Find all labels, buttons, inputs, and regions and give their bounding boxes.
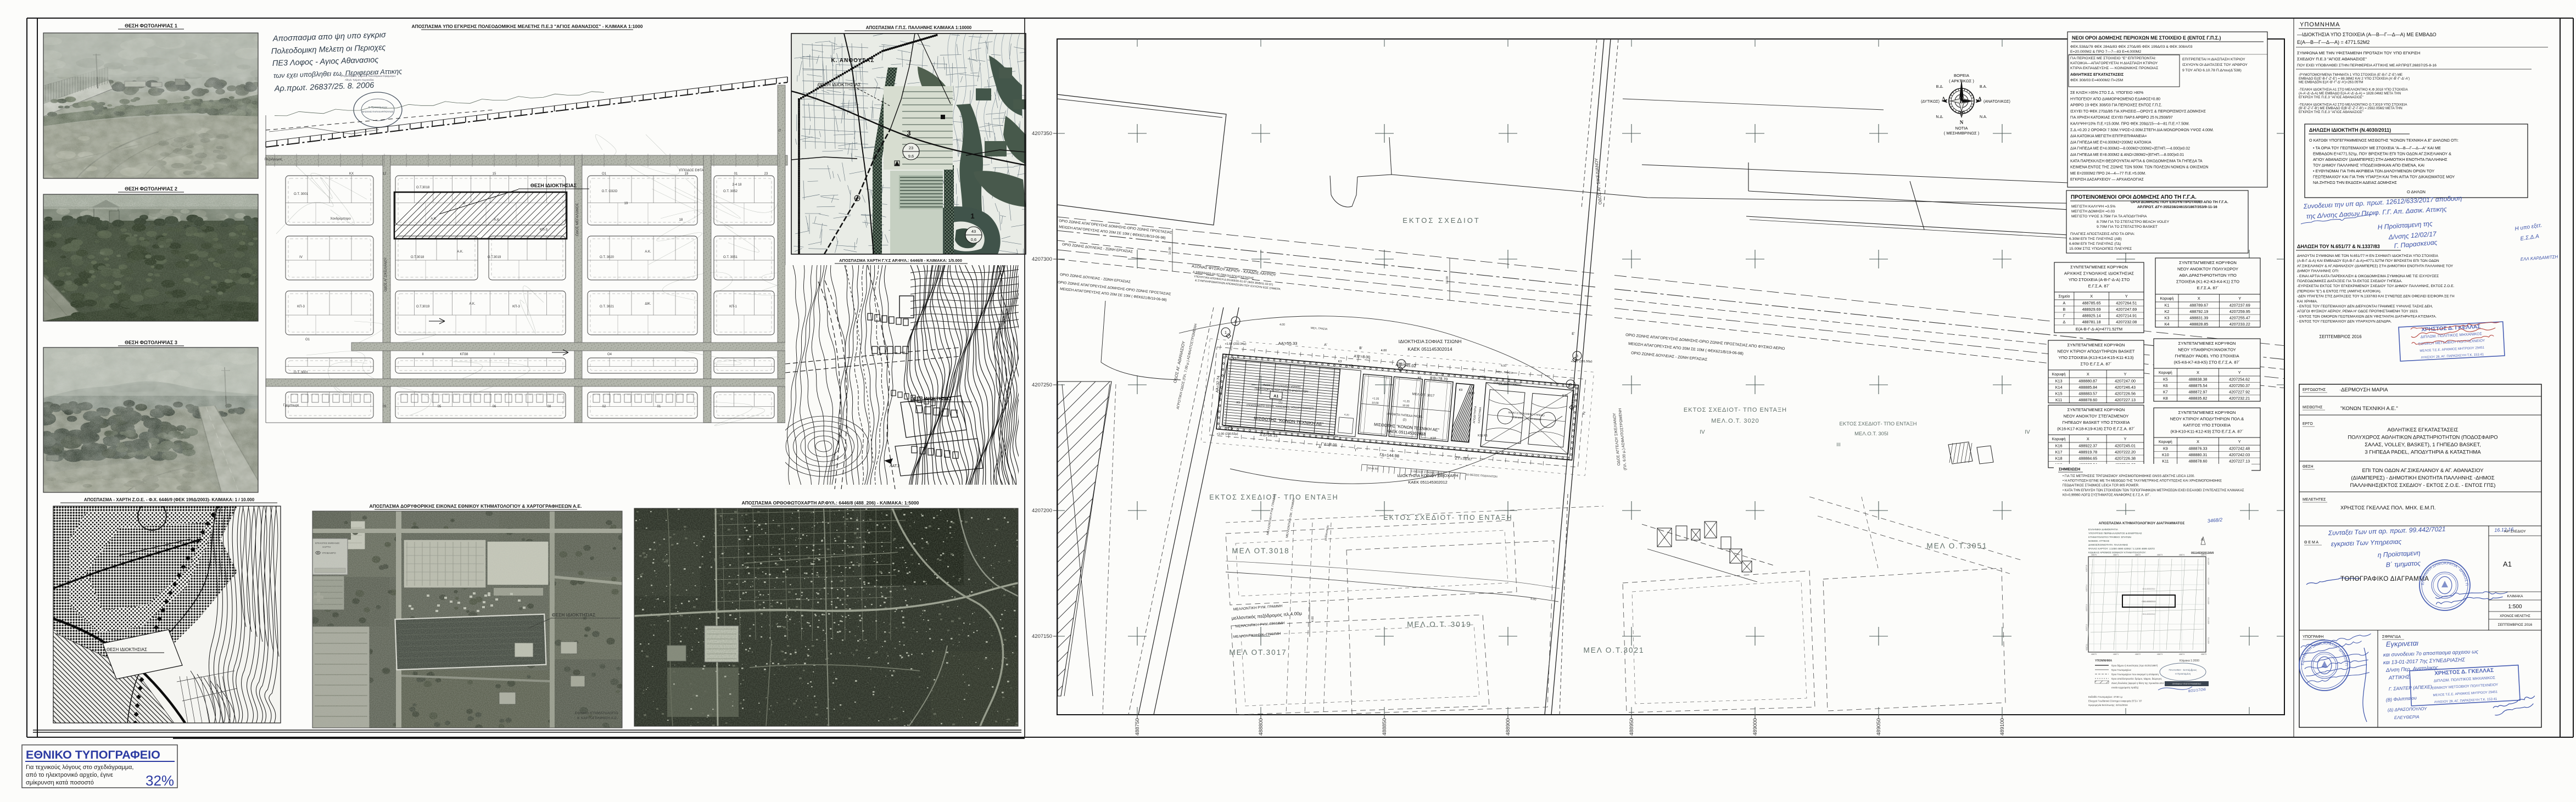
svg-text:ΣΥΝΤΕΤΑΓΜΕΝΕΣ ΚΟΡΥΦΩΝ: ΣΥΝΤΕΤΑΓΜΕΝΕΣ ΚΟΡΥΦΩΝ [2178, 341, 2236, 346]
svg-text:Όριο Γεωτεμαχίων που εκκρεμεί: Όριο Γεωτεμαχίων που εκκρεμεί η απόφαση [2111, 673, 2159, 676]
svg-text:ΜΕ Ε=2000Μ2 ΠΡΟ 24—4—77 Π.Ε.=5: ΜΕ Ε=2000Μ2 ΠΡΟ 24—4—77 Π.Ε.=5.00Μ. [2070, 172, 2146, 176]
svg-text:Δ/νση Περ. Ανατολικης: Δ/νση Περ. Ανατολικης [2385, 665, 2439, 674]
svg-text:4207237.69: 4207237.69 [2229, 303, 2250, 308]
svg-text:1: 1 [1225, 331, 1227, 335]
svg-text:+1.00 (230.52μ): +1.00 (230.52μ) [1216, 433, 1238, 436]
svg-text:488925.14: 488925.14 [2082, 313, 2101, 318]
svg-text:ΒΑΣΙΛΗΣ ΠΑΠΑΧΑΡ/ΠΟΥΛΟΣ: ΒΑΣΙΛΗΣ ΠΑΠΑΧΑΡ/ΠΟΥΛΟΣ [362, 110, 394, 113]
svg-text:ΦΕΚ.538Δ/78 ΦΕΚ 284Δ/83 ΦΕΚ 27: ΦΕΚ.538Δ/78 ΦΕΚ 284Δ/83 ΦΕΚ 270Δ/85 ΦΕΚ … [2070, 45, 2193, 49]
svg-text:Y: Y [2124, 436, 2127, 441]
svg-text:488884.65: 488884.65 [2078, 456, 2097, 461]
svg-text:Όριο απαλλοτριωτέα: δρόμοι, τά: Όριο απαλλοτριωτέα: δρόμοι, τάφροι, διώρ… [2111, 677, 2162, 680]
svg-text:Όριο Γεωτεμαχίων: Όριο Γεωτεμαχίων [2111, 669, 2132, 671]
svg-text:ΑΓ.ΣΙΚΕΛΙΑΝΟΥ & ΑΓ.ΑΘΑΝΑΣΙΟΥ (: ΑΓ.ΣΙΚΕΛΙΑΝΟΥ & ΑΓ.ΑΘΑΝΑΣΙΟΥ (ΔΙΑΜΠΕΡΕΣ)… [2297, 264, 2454, 268]
svg-text:ΑΠΟΣΠΑΣΜΑ ΚΤΗΜΑΤΟΛΟΓΙΚΟΥ ΔΙΑΓΡ: ΑΠΟΣΠΑΣΜΑ ΚΤΗΜΑΤΟΛΟΓΙΚΟΥ ΔΙΑΓΡΑΜΜΑΤΟΣ [2099, 521, 2185, 525]
svg-text:ΑΡΧΙΚΗΣ ΣΥΝΟΛΙΚΗΣ ΙΔΙΟΚΤΗΣΙΑΣ: ΑΡΧΙΚΗΣ ΣΥΝΟΛΙΚΗΣ ΙΔΙΟΚΤΗΣΙΑΣ [2064, 271, 2134, 276]
svg-text:Χονδρεμπορο: Χονδρεμπορο [330, 217, 351, 221]
svg-text:ΤΟΠΟΓΡΑΦΙΚΟ ΔΙΑΓΡΑΜΜΑ: ΤΟΠΟΓΡΑΦΙΚΟ ΔΙΑΓΡΑΜΜΑ [2340, 576, 2429, 582]
svg-text:ΠΟΛΥΧΩΡΟΣ ΑΘΛΗΤΙΚΩΝ ΔΡΑΣΤΗΡΙΟΤ: ΠΟΛΥΧΩΡΟΣ ΑΘΛΗΤΙΚΩΝ ΔΡΑΣΤΗΡΙΟΤΗΤΩΝ (ΠΟΔΟ… [2348, 435, 2497, 441]
svg-text:4207150: 4207150 [1032, 633, 1052, 640]
svg-text:8.70Μ ΓΙΑ ΤΟ ΣΤΕΓΑΣΤΡΟ BEACH V: 8.70Μ ΓΙΑ ΤΟ ΣΤΕΓΑΣΤΡΟ BEACH VOLEY [2097, 220, 2170, 224]
svg-text:48870: 48870 [2091, 554, 2097, 556]
svg-text:Πεζοδρομος: Πεζοδρομος [265, 158, 282, 161]
svg-text:Y: Y [2238, 439, 2241, 444]
svg-text:Κ2: Κ2 [1233, 357, 1237, 361]
svg-text:488885.84: 488885.84 [2078, 385, 2097, 390]
svg-text:Κορυφή: Κορυφή [2160, 297, 2174, 301]
svg-text:420714: 420714 [2086, 585, 2088, 592]
svg-text:ΔΗΛΩΣΗ ΤΟΥ Ν.651/77 & Ν.1337/8: ΔΗΛΩΣΗ ΤΟΥ Ν.651/77 & Ν.1337/83 [2297, 244, 2380, 249]
svg-text:ΨΗΦΙΑΚΑ ΥΠΟΓΕΓΡΑΜΜΕΝΟ: ΨΗΦΙΑΚΑ ΥΠΟΓΕΓΡΑΜΜΕΝΟ [2172, 683, 2201, 685]
svg-text:488835.82: 488835.82 [2189, 396, 2208, 401]
svg-text:Ο.Τ. 3001: Ο.Τ. 3001 [294, 193, 309, 196]
svg-text:ΛΑΤ.3: ΛΑΤ.3 [890, 464, 899, 468]
svg-text:ΘΕΣΗ: ΘΕΣΗ [2303, 465, 2314, 469]
svg-text:Κ4: Κ4 [1335, 435, 1338, 438]
svg-text:10.00: 10.00 [1446, 276, 1449, 284]
svg-text:• ΤΑ ΟΡΙΑ ΤΟΥ ΓΕΩΤΕΜΑΧΙΟΥ ΜΕ: • ΤΑ ΟΡΙΑ ΤΟΥ ΓΕΩΤΕΜΑΧΙΟΥ ΜΕ ΣΤΟΙΧΕΙΑ "Α… [2313, 145, 2441, 150]
svg-text:43: 43 [971, 229, 976, 234]
svg-text:ΣΕΠΤΕΜΒΡΙΟΣ 2016: ΣΕΠΤΕΜΒΡΙΟΣ 2016 [2498, 623, 2533, 627]
svg-text:4207264.51: 4207264.51 [2116, 301, 2137, 306]
svg-text:3468/2: 3468/2 [2207, 517, 2222, 524]
svg-text:4207250.37: 4207250.37 [2229, 383, 2250, 388]
svg-text:ΝΕΟΥ ΥΠΑΙΘΡΙΟΥ/ΑΝΟΙΚΤΟΥ: ΝΕΟΥ ΥΠΑΙΘΡΙΟΥ/ΑΝΟΙΚΤΟΥ [2178, 347, 2236, 352]
svg-text:ΣΥΝΤΕΤΑΓΜΕΝΕΣ ΚΟΡΥΦΩΝ: ΣΥΝΤΕΤΑΓΜΕΝΕΣ ΚΟΡΥΦΩΝ [2067, 407, 2125, 412]
svg-text:ΑΠΟΣΠΑΣΜΑ ΟΡΘΟΦΩΤΟΧΑΡΤΗ ΑΡ.ΦΥΛ: ΑΠΟΣΠΑΣΜΑ ΟΡΘΟΦΩΤΟΧΑΡΤΗ ΑΡ.ΦΥΛ.: 6446/8 … [742, 500, 919, 506]
svg-text:Ο.Τ. Ο32Ο: Ο.Τ. Ο32Ο [602, 190, 618, 193]
svg-text:3: 3 [1576, 355, 1578, 358]
svg-text:ΥΠΟΜΝΗΜΑ: ΥΠΟΜΝΗΜΑ [2095, 659, 2112, 663]
svg-text:ΟΡΙΟ ΖΩΝΗΣ ΔΟΥΛΕΙΑΣ - ΖΩΝΗ ΕΡΓ: ΟΡΙΟ ΖΩΝΗΣ ΔΟΥΛΕΙΑΣ - ΖΩΝΗ ΕΡΓΑΣΙΑΣ [1062, 243, 1133, 254]
svg-text:+1.82 (232.34μ): +1.82 (232.34μ) [1225, 343, 1246, 346]
svg-text:ΚΠ-3: ΚΠ-3 [512, 305, 520, 309]
svg-text:Κ1: Κ1 [2165, 303, 2170, 308]
svg-text:ΜΕΛ.Ο.Τ. 3019: ΜΕΛ.Ο.Τ. 3019 [1407, 620, 1472, 629]
svg-text:4207226.56: 4207226.56 [2115, 391, 2136, 396]
svg-text:488750: 488750 [1135, 718, 1141, 736]
svg-text:Β: Β [2063, 307, 2066, 312]
svg-text:Γρεμπιωρε: Γρεμπιωρε [283, 404, 299, 407]
svg-text:• ΓΙΑ ΤΙΣ ΜΕΤΡΗΣΕΙΣ ΤΡΙΓΩΝΙ: • ΓΙΑ ΤΙΣ ΜΕΤΡΗΣΕΙΣ ΤΡΙΓΩΝΙΣΜΟΥ ΧΡΗΣΙΜΟΠ… [2063, 475, 2195, 478]
svg-text:48874: 48874 [2179, 653, 2185, 655]
svg-text:ΣΕΠΤΕΜΒΡΙΟΣ 2016: ΣΕΠΤΕΜΒΡΙΟΣ 2016 [2319, 334, 2362, 339]
svg-text:ΝΟΤΙΑ: ΝΟΤΙΑ [1955, 126, 1968, 131]
svg-text:ΜΕΛΛΟΝΤΙΚΗ ΡΥΜ. ΓΡΑΜΜΗ: ΜΕΛΛΟΝΤΙΚΗ ΡΥΜ. ΓΡΑΜΜΗ [1233, 604, 1283, 612]
svg-text:ΜΙΣΘΩΤΗΣ "ΚΟΝΩΝ ΤΕΧΝΙΚΗ ΑΕ": ΜΙΣΘΩΤΗΣ "ΚΟΝΩΝ ΤΕΧΝΙΚΗ ΑΕ" [1254, 416, 1324, 427]
svg-text:Ν: Ν [1960, 120, 1964, 125]
svg-text:ΘΕΣΗ ΙΔΙΟΚΤΗΣΙΑΣ: ΘΕΣΗ ΙΔΙΟΚΤΗΣΙΑΣ [107, 647, 147, 652]
svg-text:ΥΠΟΓΡΑΦΗ: ΥΠΟΓΡΑΦΗ [2303, 635, 2323, 639]
svg-text:Αρ.πρωτ. 26837/25. 8. 2006: Αρ.πρωτ. 26837/25. 8. 2006 [274, 81, 375, 93]
svg-text:488872.97: 488872.97 [2189, 390, 2208, 395]
svg-text:ΕΛΛΗΝΙΚΗ ΔΗΜΟΚΡΑΤΙΑ: ΕΛΛΗΝΙΚΗ ΔΗΜΟΚΡΑΤΙΑ [2088, 528, 2119, 531]
svg-text:ΔΗΜΟΥ ΠΑΛΛΗΝΗΣ ΟΤΙ:: ΔΗΜΟΥ ΠΑΛΛΗΝΗΣ ΟΤΙ: [2297, 270, 2339, 273]
svg-text:15: 15 [493, 172, 496, 176]
svg-text:Ο.Τ.3019: Ο.Τ.3019 [488, 256, 501, 259]
svg-text:- ΕΝΤΟΣ ΤΟΥ ΓΕΩΤΕΜΑΧΙΟΥ ΔΕΝ ΥΠ: - ΕΝΤΟΣ ΤΟΥ ΓΕΩΤΕΜΑΧΙΟΥ ΔΕΝ ΥΠΑΡΧΟΥΝ ΔΕΝ… [2297, 320, 2392, 324]
svg-text:ΜΕΛ. ΓΡΑΣΙΑ: ΜΕΛ. ΓΡΑΣΙΑ [1496, 371, 1513, 375]
svg-text:Ο.Τ. 3051: Ο.Τ. 3051 [723, 256, 738, 259]
svg-text:Κ2: Κ2 [2165, 309, 2170, 314]
svg-text:4207259.95: 4207259.95 [2229, 309, 2250, 314]
svg-text:Κ12: Κ12 [1420, 433, 1425, 436]
svg-text:ΑΘΛΗΤΙΚΕΣ ΕΓΚΑΤΑΣΤΑΣΕΙΣ: ΑΘΛΗΤΙΚΕΣ ΕΓΚΑΤΑΣΤΑΣΕΙΣ [2070, 73, 2124, 77]
svg-text:Όριο δήμου ή Κοινότητας (προ 0: Όριο δήμου ή Κοινότητας (προ 01/01/1997) [2111, 664, 2158, 667]
svg-text:Κ11: Κ11 [2162, 459, 2169, 464]
svg-text:Ε=20.000Μ2 & ΠΡΟ 7—7—83 Ε=4.00: Ε=20.000Μ2 & ΠΡΟ 7—7—83 Ε=4.000Μ2 [2070, 50, 2141, 54]
svg-text:Κορυφή: Κορυφή [2052, 438, 2066, 441]
svg-text:2-4 18: 2-4 18 [732, 183, 742, 187]
svg-text:488880.87: 488880.87 [2078, 379, 2097, 384]
svg-text:4207250: 4207250 [1032, 382, 1052, 388]
svg-text:Η Προϊσταμενη της: Η Προϊσταμενη της [2377, 220, 2433, 231]
svg-text:50+4.50: 50+4.50 [1368, 467, 1378, 470]
svg-text:ΙΙΙ: ΙΙΙ [1836, 442, 1841, 447]
svg-text:Α'Β'=8.00: Α'Β'=8.00 [1354, 355, 1370, 360]
svg-text:420715: 420715 [2208, 558, 2210, 565]
svg-text:420713: 420713 [2208, 597, 2210, 604]
svg-text:ΥΠΟΜΝΗΜΑ: ΥΠΟΜΝΗΜΑ [2300, 21, 2340, 28]
svg-text:ΠΑΛΛΗΝΗΣ(ΕΚΤΟΣ ΣΧΕΔΙΟΥ - ΕΚΤΟΣ: ΠΑΛΛΗΝΗΣ(ΕΚΤΟΣ ΣΧΕΔΙΟΥ - ΕΚΤΟΣ Ζ.Ο.Ε. - … [2350, 483, 2496, 489]
svg-text:Κ15: Κ15 [2055, 391, 2063, 396]
svg-text:μελλοντικός: μελλοντικός [1323, 525, 1330, 541]
svg-text:Β'Β=78.70: Β'Β=78.70 [1430, 377, 1448, 382]
svg-text:Σημείο: Σημείο [2059, 294, 2070, 299]
svg-text:Ο.Τ. 3052: Ο.Τ. 3052 [723, 190, 738, 193]
svg-text:Αθηνά, Τμήματο Χωροταξίας: Αθηνά, Τμήματο Χωροταξίας [345, 78, 374, 81]
svg-text:ΚΠ38: ΚΠ38 [460, 353, 468, 356]
svg-text:Κ5: Κ5 [1349, 364, 1353, 368]
svg-text:051145302014: 051145302014 [2142, 588, 2155, 590]
svg-text:Κ19: Κ19 [1480, 375, 1485, 379]
svg-text:ΜΕΛΟΣ Τ.Ε.Ε. ΑΡΙΘΜΟΣ ΜΗΤΡΩΟΥ 2: ΜΕΛΟΣ Τ.Ε.Ε. ΑΡΙΘΜΟΣ ΜΗΤΡΩΟΥ 29451 [2419, 346, 2485, 353]
svg-text:48870: 48870 [2091, 653, 2097, 655]
svg-text:ΣΧΕΔΙΟΥ Π.Ε.3 "ΑΓΙΟΣ ΑΘΑΝΑΣΙΟΣ: ΣΧΕΔΙΟΥ Π.Ε.3 "ΑΓΙΟΣ ΑΘΑΝΑΣΙΟΣ" [2297, 57, 2367, 61]
svg-text:4207242.48: 4207242.48 [2229, 446, 2250, 451]
svg-text:ΑΓΙΟΥ ΑΘΑΝΑΣΙΟΥ (ΔΙΑΜΠΕΡΕΣ) ΣΤ: ΑΓΙΟΥ ΑΘΑΝΑΣΙΟΥ (ΔΙΑΜΠΕΡΕΣ) ΣΤΗ ΔΗΜΟΤΙΚΗ… [2313, 157, 2448, 162]
svg-text:Σ.Δ.=0.20 2 ΟΡΟΦΟΙ 7.50Μ.ΥΨΟΣ+: Σ.Δ.=0.20 2 ΟΡΟΦΟΙ 7.50Μ.ΥΨΟΣ+2.00Μ.ΣΤΕΓ… [2070, 128, 2214, 132]
svg-text:ΠΡΟΤΕΙΝΟΜΕΝΟΙ ΟΡΟΙ ΔΟΜΗΣΗΣ ΑΠ: ΠΡΟΤΕΙΝΟΜΕΝΟΙ ΟΡΟΙ ΔΟΜΗΣΗΣ ΑΠΟ ΤΗ Γ.Γ.Α. [2071, 194, 2197, 200]
svg-text:Κ5: Κ5 [2163, 377, 2168, 382]
svg-text:( ΑΡΚΤΙΚΩΣ ): ( ΑΡΚΤΙΚΩΣ ) [1949, 78, 1974, 83]
svg-text:ΚΕΙΜΕΝΑ ΕΝΤΟΣ ΤΗΣ ΖΩΝΗΣ ΤΩΝ 50: ΚΕΙΜΕΝΑ ΕΝΤΟΣ ΤΗΣ ΖΩΝΗΣ ΤΩΝ 500Μ. ΤΩΝ ΠΟ… [2070, 166, 2209, 170]
svg-text:Κ9: Κ9 [2163, 446, 2168, 451]
svg-text:ΒΓ=33.09: ΒΓ=33.09 [1571, 394, 1577, 411]
svg-text:48872: 48872 [2135, 653, 2141, 655]
svg-text:488876.33: 488876.33 [2189, 446, 2208, 451]
svg-text:051145302012: 051145302012 [2142, 613, 2155, 615]
svg-text:Κ11: Κ11 [2055, 397, 2062, 402]
svg-text:ΚΑΤΑΣΤΗΜΑ: ΚΑΤΑΣΤΗΜΑ [1478, 407, 1483, 424]
svg-text:489050: 489050 [1876, 718, 1882, 736]
svg-text:Ε(Α-Β-Γ-Δ-Α)=4771.52ΤΜ: Ε(Α-Β-Γ-Δ-Α)=4771.52ΤΜ [2076, 327, 2122, 332]
svg-text:Κ3: Κ3 [1338, 360, 1342, 363]
svg-text:Κ3: Κ3 [2165, 316, 2170, 321]
svg-text:23: 23 [764, 172, 768, 176]
svg-text:ΑΘΛ.ΔΡΑΣΤΗΡΙΟΤΗΤΩΝ ΥΠΟ: ΑΘΛ.ΔΡΑΣΤΗΡΙΟΤΗΤΩΝ ΥΠΟ [2179, 273, 2237, 278]
svg-text:ΟΔΟΣ ΑΓ. ΣΙΚΕΛΙΑΝΟΥ: ΟΔΟΣ ΑΓ. ΣΙΚΕΛΙΑΝΟΥ [1594, 158, 1602, 205]
svg-text:Κ10: Κ10 [1469, 392, 1474, 395]
svg-text:ΘΕΣΗ ΦΩΤΟΛΗΨΙΑΣ 1: ΘΕΣΗ ΦΩΤΟΛΗΨΙΑΣ 1 [125, 23, 177, 29]
svg-text:μελλοντικός πεζόδρομος πλ.4.00: μελλοντικός πεζόδρομος πλ.4.00μ [1231, 610, 1302, 621]
svg-text:Κορυφή: Κορυφή [2159, 440, 2172, 444]
svg-text:4207227.13: 4207227.13 [2115, 397, 2136, 402]
svg-text:ΕΓΚΡΙΣΗ ΔΑΣΑΡΧΕΙΟΥ — ΑΡΧΑΙΟΛΟΓ: ΕΓΚΡΙΣΗ ΔΑΣΑΡΧΕΙΟΥ — ΑΡΧΑΙΟΛΟΓΙΑΣ [2070, 178, 2144, 182]
svg-text:X: X [2087, 372, 2089, 377]
svg-text:Δ: Δ [1942, 96, 1945, 102]
svg-text:ΚΧ: ΚΧ [349, 172, 354, 176]
svg-text:ΙΣΧΥΕΙ ΤΟ ΦΕΚ 270Δ/85 ΓΙΑ ΧΡΗΣ: ΙΣΧΥΕΙ ΤΟ ΦΕΚ 270Δ/85 ΓΙΑ ΧΡΗΣΕΙΣ—ΟΡΟΥΣ … [2070, 110, 2206, 114]
svg-text:ΜΕΛΛΟΝΤΙΚΗ ΟΙΚ. ΓΡΑΜΜΗ: ΜΕΛΛΟΝΤΙΚΗ ΟΙΚ. ΓΡΑΜΜΗ [1233, 632, 1281, 639]
svg-text:ΕΘΝΙΚΟΥ ΜΕΤΣΟΒΙΟΥ ΠΟΛΥΤΕΧΝΕΙΟΥ: ΕΘΝΙΚΟΥ ΜΕΤΣΟΒΙΟΥ ΠΟΛΥΤΕΧΝΕΙΟΥ [2432, 683, 2499, 690]
svg-text:Α: Α [1978, 96, 1982, 102]
svg-text:ΠΑΛΛΗΝΗ - Σεπτέμβριος: ΠΑΛΛΗΝΗ - Σεπτέμβριος [2169, 668, 2197, 671]
svg-text:(ΠΕΡΙΟΧΗ "Ε") & ΕΝΤΟΣ ΓΠΣ (ΑΜΙ: (ΠΕΡΙΟΧΗ "Ε") & ΕΝΤΟΣ ΓΠΣ (ΑΜΙΓΗΣ ΚΑΤΟΙΚ… [2297, 289, 2382, 293]
svg-text:488919.78: 488919.78 [2078, 450, 2097, 455]
svg-text:ΓΙΑ ΧΡΗΣΗ ΚΑΤΟΙΚΙΑΣ ΙΣΧΥΕΙ ΠΑΡ: ΓΙΑ ΧΡΗΣΗ ΚΑΤΟΙΚΙΑΣ ΙΣΧΥΕΙ ΠΑΡ.6 ΑΡΘΡΟ 2… [2070, 116, 2173, 120]
svg-text:ΑΠΟΣΠΑΣΜΑ ΧΑΡΤΗ Γ.Υ.Σ ΑΡ.ΦΥΛ.:: ΑΠΟΣΠΑΣΜΑ ΧΑΡΤΗ Γ.Υ.Σ ΑΡ.ΦΥΛ.: 6446/8 - … [839, 258, 962, 263]
svg-text:ΜΕΓΙΣΤΗ ΚΑΛΥΨΗ =3.5%: ΜΕΓΙΣΤΗ ΚΑΛΥΨΗ =3.5% [2071, 205, 2116, 209]
svg-text:23: 23 [909, 145, 913, 150]
svg-text:4.00: 4.00 [1279, 323, 1285, 327]
svg-text:Ημερομηνία Εκτύπωσης: 22/11/20: Ημερομηνία Εκτύπωσης: 22/11/2016 [2088, 704, 2128, 706]
svg-text:ΣΥΜΦΩΝΑ ΜΕ ΤΗΝ ΥΦΙΣΤΑΜΕΝΗ ΠΡΟΤ: ΣΥΜΦΩΝΑ ΜΕ ΤΗΝ ΥΦΙΣΤΑΜΕΝΗ ΠΡΟΤΑΣΗ ΤΟΥ ΥΠ… [2297, 51, 2420, 55]
svg-text:488922.37: 488922.37 [2078, 444, 2097, 448]
svg-text:Η Προϊσταμένη: Η Προϊσταμένη [2175, 672, 2191, 675]
svg-text:ΓΙΑ ΠΕΡΙΟΧΕΣ ΜΕ ΣΤΟΙΧΕΙΟ "Ε" Ε: ΓΙΑ ΠΕΡΙΟΧΕΣ ΜΕ ΣΤΟΙΧΕΙΟ "Ε" ΕΠΙΤΡΕΠΟΝΤΑ… [2070, 57, 2156, 60]
svg-text:(ΔΙΑΜΠΕΡΕΣ) - ΔΗΜΟΤΙΚΗ ΕΝΟΤΗΤΑ: (ΔΙΑΜΠΕΡΕΣ) - ΔΗΜΟΤΙΚΗ ΕΝΟΤΗΤΑ ΠΑΛΛΗΝΗΣ … [2351, 475, 2494, 481]
svg-text:ΕΠΙ ΤΩΝ ΟΔΩΝ ΑΓ.ΣΙΚΕΛΙΑΝΟΥ & Α: ΕΠΙ ΤΩΝ ΟΔΩΝ ΑΓ.ΣΙΚΕΛΙΑΝΟΥ & ΑΓ. ΑΘΑΝΑΣΙ… [2362, 468, 2484, 474]
svg-text:ΕΓΚΡΙΣΗ ΤΗΣ Π.Ε.3 "ΑΓΙΟΣ ΑΘΑΝΑ: ΕΓΚΡΙΣΗ ΤΗΣ Π.Ε.3 "ΑΓΙΟΣ ΑΘΑΝΑΣΙΟΣ" [2299, 110, 2363, 114]
svg-text:Ο.Τ. 3001: Ο.Τ. 3001 [294, 371, 309, 374]
svg-text:Ο ΚΑΤΩΘΙ ΥΠΟΓΕΓΡΑΜΜΕΝΟΣ ΜΙΣΘΩΤ: Ο ΚΑΤΩΘΙ ΥΠΟΓΕΓΡΑΜΜΕΝΟΣ ΜΙΣΘΩΤΗΣ "ΚΟΝΩΝ … [2309, 138, 2458, 143]
svg-text:εγκρισει Των Υπηρεσιας: εγκρισει Των Υπηρεσιας [2331, 538, 2402, 548]
svg-text:Γ'Δ'=8.00: Γ'Δ'=8.00 [1321, 442, 1337, 447]
svg-text:Ν.Α.: Ν.Α. [1980, 115, 1987, 119]
svg-text:Κ13: Κ13 [2055, 379, 2063, 384]
svg-text:32%: 32% [146, 772, 174, 789]
svg-text:19: 19 [624, 202, 628, 205]
svg-text:ΘΕΣΗ ΦΩΤΟΛΗΨΙΑΣ 2: ΘΕΣΗ ΦΩΤΟΛΗΨΙΑΣ 2 [125, 186, 177, 192]
svg-text:48871: 48871 [2113, 653, 2119, 655]
svg-text:(Β) Φιλιππαιου: (Β) Φιλιππαιου [2385, 695, 2417, 703]
svg-text:Εγκρινεται: Εγκρινεται [2386, 639, 2419, 648]
svg-text:Η υπο εξετ.: Η υπο εξετ. [2514, 222, 2543, 232]
svg-text:06: 06 [493, 405, 496, 408]
svg-text:01: 01 [657, 405, 661, 408]
svg-text:ΘΕΣΗ ΦΩΤΟΛΗΨΙΑΣ 3: ΘΕΣΗ ΦΩΤΟΛΗΨΙΑΣ 3 [125, 340, 177, 345]
svg-text:Αποσπασμα απο ψη υπο εγκρι: Αποσπασμα απο ψη υπο εγκρισ [272, 31, 387, 43]
svg-text:Ο Προϊστάμενος τμήματος Πολεοδ: Ο Προϊστάμενος τμήματος Πολεοδομικών Εφα… [340, 75, 396, 77]
svg-text:Κ8: Κ8 [2163, 396, 2168, 401]
svg-text:ΠΟΛΕΟΔΟΜΙΚΕΣ ΔΙΑΤΑΞΕΙΣ ΓΙΑ ΤΑ: ΠΟΛΕΟΔΟΜΙΚΕΣ ΔΙΑΤΑΞΕΙΣ ΓΙΑ ΤΑ ΕΚΤΟΣ ΣΧΕΔ… [2297, 279, 2402, 283]
svg-text:ΠΛΑΓΙΕΣ ΑΠΟΣΤΑΣΕΙΣ ΑΠΟ ΤΑ ΟΡΙΑ: ΠΛΑΓΙΕΣ ΑΠΟΣΤΑΣΕΙΣ ΑΠΟ ΤΑ ΟΡΙΑ: [2070, 232, 2135, 236]
svg-text:Κορυφή: Κορυφή [2052, 373, 2066, 377]
svg-text:Ο.Τ. 3020: Ο.Τ. 3020 [600, 256, 614, 259]
svg-text:ΓΔ=144.98: ΓΔ=144.98 [1379, 452, 1399, 458]
svg-text:488900: 488900 [1505, 718, 1511, 736]
svg-text:Ο ΔΗΛΩΝ: Ο ΔΗΛΩΝ [2407, 189, 2426, 194]
svg-text:ΜΕΛΛΟΝΤΙΚΗ ΟΙΚ. ΓΡΑΜΜΗ: ΜΕΛΛΟΝΤΙΚΗ ΟΙΚ. ΓΡΑΜΜΗ [1286, 498, 1296, 538]
svg-text:ΚΑΛΥΨΗ=10% Π.Ε.=15.00Μ. ΠΡΟ ΦΕ: ΚΑΛΥΨΗ=10% Π.Ε.=15.00Μ. ΠΡΟ ΦΕΚ 209Δ/15—… [2070, 122, 2189, 126]
svg-text:3: 3 [907, 129, 910, 137]
svg-text:ΑΠΟΣΠΑΣΜΑ - ΧΑΡΤΗ Ζ.Ο.Ε. - Φ.Χ: ΑΠΟΣΠΑΣΜΑ - ΧΑΡΤΗ Ζ.Ο.Ε. - Φ.Χ. 6446/9 (… [84, 497, 255, 502]
svg-text:05: 05 [438, 405, 442, 408]
svg-text:Ο.Τ.3019: Ο.Τ.3019 [416, 305, 430, 309]
svg-text:ΜΕΓΙΣΤΗ ΔΟΜΗΣΗ =0.03: ΜΕΓΙΣΤΗ ΔΟΜΗΣΗ =0.03 [2071, 210, 2115, 214]
svg-text:η Προϊσταμενη: η Προϊσταμενη [2377, 549, 2421, 559]
svg-text:(τοιχος αντιστηριξης): (τοιχος αντιστηριξης) [1494, 381, 1522, 386]
svg-text:ΣΥΝΤΕΤΑΓΜΕΝΕΣ ΚΟΡΥΦΩΝ: ΣΥΝΤΕΤΑΓΜΕΝΕΣ ΚΟΡΥΦΩΝ [2178, 410, 2236, 415]
svg-text:ΕΚΤΟΣ ΣΧΕΔΙΟΤ- ΤΠΟ ΕΝΤΑΞΗ: ΕΚΤΟΣ ΣΧΕΔΙΟΤ- ΤΠΟ ΕΝΤΑΞΗ [1840, 421, 1917, 427]
svg-text:Ο4: Ο4 [607, 353, 612, 356]
svg-text:ΟΡΟΙ ΔΟΜΗΣΗΣ ΠΟΥ ΕΧΟΥΝ ΠΡΟΤΑΘΕ: ΟΡΟΙ ΔΟΜΗΣΗΣ ΠΟΥ ΕΧΟΥΝ ΠΡΟΤΑΘΕΙ ΑΠΟ ΤΗ Γ… [2131, 200, 2228, 204]
svg-text:Κ7: Κ7 [2163, 390, 2168, 395]
svg-text:ΕΚΤΟΣ ΣΧΕΔΙΟΤ- ΤΠΟ ΕΝΤΑΞΗ: ΕΚΤΟΣ ΣΧΕΔΙΟΤ- ΤΠΟ ΕΝΤΑΞΗ [1209, 493, 1338, 501]
svg-text:488878.60: 488878.60 [2189, 459, 2208, 464]
svg-text:-ΕΥΡΙΣΚΕΤΑΙ ΕΚΤΟΣ ΤΟΥ ΕΓΚΕΚΡΙΜ: -ΕΥΡΙΣΚΕΤΑΙ ΕΚΤΟΣ ΤΟΥ ΕΓΚΕΚΡΙΜΕΝΟΥ ΣΧΕΔΙ… [2297, 284, 2455, 288]
svg-text:ΔΗΛΟΥΤΑΙ ΣΥΜΦΩΝΑ ΜΕ ΤΟΝ Ν.651/: ΔΗΛΟΥΤΑΙ ΣΥΜΦΩΝΑ ΜΕ ΤΟΝ Ν.651/77 Η ΕΝ ΣΧ… [2297, 254, 2439, 258]
svg-text:Β: Β [1960, 99, 1964, 105]
svg-text:10.00: 10.00 [1169, 247, 1172, 255]
svg-text:-ΔΕΝ ΥΠΑΓΕΤΑΙ ΣΤΙΣ ΔΙΑΤΑΞΕΙΣ Τ: -ΔΕΝ ΥΠΑΓΕΤΑΙ ΣΤΙΣ ΔΙΑΤΑΞΕΙΣ ΤΟΥ Ν.1337/… [2297, 295, 2455, 299]
svg-text:Συνταξει Των υπ αρ. πρωτ. 99.: Συνταξει Των υπ αρ. πρωτ. 99.442/7021 [2328, 525, 2446, 537]
svg-text:Α.Κ.: Α.Κ. [431, 217, 437, 221]
svg-text:15.00Μ ΣΤΙΣ ΥΠΟΛΟΙΠΕΣ ΠΛΕΥΡΕΣ: 15.00Μ ΣΤΙΣ ΥΠΟΛΟΙΠΕΣ ΠΛΕΥΡΕΣ [2069, 247, 2132, 251]
svg-text:ΑΘΛΗΤΙΚΕΣ ΕΓΚΑΤΑΣΤΑΣΕΙΣ: ΑΘΛΗΤΙΚΕΣ ΕΓΚΑΤΑΣΤΑΣΕΙΣ [2387, 427, 2458, 433]
svg-text:ΚΤΙΡΙΑ ΕΚΠΑΙΔΕΥΣΗΣ — ΚΟΙΝΩΝΙΚΗ: ΚΤΙΡΙΑ ΕΚΠΑΙΔΕΥΣΗΣ — ΚΟΙΝΩΝΙΚΗΣ ΠΡΟΝΟΙΑΣ [2070, 66, 2158, 70]
svg-text:Β.Δ.: Β.Δ. [1936, 85, 1943, 89]
svg-text:ΚΑΕΚ 051145302014: ΚΑΕΚ 051145302014 [1407, 346, 1452, 352]
svg-text:ΝΑ ΖΗΤΗΣΩ ΤΗΝ ΕΚΔΟΣΗ ΑΔΕΙΑΣ ΔΟ: ΝΑ ΖΗΤΗΣΩ ΤΗΝ ΕΚΔΟΣΗ ΑΔΕΙΑΣ ΔΟΜΗΣΗΣ [2313, 180, 2398, 185]
svg-text:ΚΠ-3: ΚΠ-3 [297, 305, 305, 309]
svg-text:—ΙΔΙΟΚΤΗΣΙΑ ΥΠΟ ΣΤΟΙΧΕΙΑ (Α: —ΙΔΙΟΚΤΗΣΙΑ ΥΠΟ ΣΤΟΙΧΕΙΑ (Α—Β—Γ—Δ—Α) ΜΕ … [2297, 32, 2437, 37]
svg-text:ΕΜΒΑΔΟΝ Ε=4771.52τμ, ΠΟΥ ΒΡΙΣΚ: ΕΜΒΑΔΟΝ Ε=4771.52τμ, ΠΟΥ ΒΡΙΣΚΕΤΑΙ ΕΠΙ Τ… [2313, 152, 2451, 156]
svg-text:ΔΙΑ ΓΗΠΕΔΑ ΜΕ Ε=4.000Μ2—8.000Μ: ΔΙΑ ΓΗΠΕΔΑ ΜΕ Ε=4.000Μ2—8.000Μ2=200Μ2+(Ε… [2070, 147, 2190, 151]
svg-text:Κ14: Κ14 [2055, 385, 2063, 390]
svg-text:ΜΕΛ ΟΤ.3018: ΜΕΛ ΟΤ.3018 [1232, 547, 1289, 555]
svg-text:ΜΕΛΟΣ Τ.Ε.Ε. ΑΡΙΘΜΟΣ ΜΗΤΡΩΟΥ 2: ΜΕΛΟΣ Τ.Ε.Ε. ΑΡΙΘΜΟΣ ΜΗΤΡΩΟΥ 29451 [2433, 691, 2498, 697]
svg-text:Y: Y [2125, 294, 2128, 299]
svg-text:ΧΡΗΣΤΟΣ ΓΚΕΛΛΑΣ ΠΟΛ. ΜΗΧ. Ε.Μ.: ΧΡΗΣΤΟΣ ΓΚΕΛΛΑΣ ΠΟΛ. ΜΗΧ. Ε.Μ.Π. [2340, 505, 2436, 511]
svg-text:ΓΕΩΤΕΜΑΧΙΟΥ ΚΑΙ ΓΙΑ ΤΗΝ ΥΠΑΡΞΗ: ΓΕΩΤΕΜΑΧΙΟΥ ΚΑΙ ΓΙΑ ΤΗΝ ΥΠΑΡΞΗ ΚΑΙ ΤΗΝ Α… [2313, 175, 2455, 180]
svg-text:IV: IV [299, 256, 303, 259]
svg-text:ΣΤΟΙΧΕΙΑ (Κ1-Κ2-Κ3-Κ4-Κ1) ΣΤΟ: ΣΤΟΙΧΕΙΑ (Κ1-Κ2-Κ3-Κ4-Κ1) ΣΤΟ [2176, 279, 2239, 284]
svg-text:Γ: Γ [2063, 313, 2065, 318]
svg-text:488850: 488850 [1382, 718, 1388, 736]
svg-text:ΕΘΝΙΚΟ ΤΥΠΟΓΡΑΦΕΙΟ: ΕΘΝΙΚΟ ΤΥΠΟΓΡΑΦΕΙΟ [26, 748, 160, 761]
svg-text:4207246.43: 4207246.43 [2115, 385, 2136, 390]
svg-text:ΜΕΛ Ο.Τ.3051: ΜΕΛ Ο.Τ.3051 [1926, 542, 1987, 550]
svg-text:488828.85: 488828.85 [2189, 322, 2208, 327]
svg-text:Ο.Τ.3018: Ο.Τ.3018 [411, 256, 424, 259]
svg-text:48875: 48875 [2201, 554, 2207, 556]
svg-text:ΜΕΛ ΟΤ.3017: ΜΕΛ ΟΤ.3017 [1229, 648, 1287, 657]
svg-text:4207222.20: 4207222.20 [2115, 450, 2136, 455]
svg-text:Α.Κ.: Α.Κ. [645, 250, 651, 254]
svg-text:Β΄ τμηματος: Β΄ τμηματος [2385, 559, 2421, 569]
svg-text:4.00: 4.00 [1311, 616, 1315, 622]
svg-text:9 ΤΟΥ ΑΠΟ 6.10.78 Π.Δ/του(Δ΄53: 9 ΤΟΥ ΑΠΟ 6.10.78 Π.Δ/του(Δ΄538) [2182, 69, 2242, 72]
svg-text:4207300: 4207300 [1032, 256, 1052, 262]
svg-text:420713: 420713 [2086, 604, 2088, 612]
svg-text:ΟΔΟΣ ΑΓ.ΣΙΚΕΛΙΑΝΟΥ: ΟΔΟΣ ΑΓ.ΣΙΚΕΛΙΑΝΟΥ [384, 257, 388, 291]
svg-text:Ζ': Ζ' [1583, 412, 1585, 416]
svg-text:ΝΕΟΙ ΟΡΟΙ ΔΟΜΗΣΗΣ ΠΕΡΙΟΧΩΝ ΜΕ: ΝΕΟΙ ΟΡΟΙ ΔΟΜΗΣΗΣ ΠΕΡΙΟΧΩΝ ΜΕ ΣΤΟΙΧΕΙΟ Ε… [2072, 35, 2221, 41]
svg-text:από το ηλεκτρονικό αρχείο, έγι: από το ηλεκτρονικό αρχείο, έγινε [26, 772, 113, 778]
svg-text:Ε.Σ.Δ.Α: Ε.Σ.Δ.Α [2520, 233, 2540, 242]
svg-text:48871: 48871 [2113, 554, 2119, 556]
svg-text:ΕΠΙΤΡΕΠΕΤΑΙ Η ΔΙΑΣΠΑΣΗ ΚΤΙΡΙΟΥ: ΕΠΙΤΡΕΠΕΤΑΙ Η ΔΙΑΣΠΑΣΗ ΚΤΙΡΙΟΥ [2182, 58, 2245, 61]
svg-text:ΙΠΠΟΔΟΣ ΕΦΤΑ: ΙΠΠΟΔΟΣ ΕΦΤΑ [679, 169, 704, 172]
svg-text:(Κ5-Κ6-Κ7-Κ8-Κ5) ΣΤΟ Ε.Γ.Σ.Α.: (Κ5-Κ6-Κ7-Κ8-Κ5) ΣΤΟ Ε.Γ.Σ.Α. 87΄ [2174, 360, 2240, 365]
svg-text:(Κ16-Κ17-Κ18-Κ19-Κ16) ΣΤΟ Ε.Γ.: (Κ16-Κ17-Κ18-Κ19-Κ16) ΣΤΟ Ε.Γ.Σ.Α. 87΄ [2057, 427, 2135, 431]
svg-text:0,6: 0,6 [971, 237, 976, 242]
svg-text:Α: Α [2063, 301, 2066, 306]
svg-text:ΔΙΠΛΩΜ. ΠΟΛΙΤΙΚΟΣ ΜΗΧΑΝΙΚΟΣ: ΔΙΠΛΩΜ. ΠΟΛΙΤΙΚΟΣ ΜΗΧΑΝΙΚΟΣ [2434, 676, 2496, 683]
svg-text:4207350: 4207350 [1032, 131, 1052, 137]
svg-text:4207232.21: 4207232.21 [2229, 396, 2250, 401]
svg-text:ΝΕΟΥ ΑΝΟΙΚΤΟΥ ΣΤΕΓΑΣΜΕΝΟΥ: ΝΕΟΥ ΑΝΟΙΚΤΟΥ ΣΤΕΓΑΣΜΕΝΟΥ [2064, 414, 2129, 419]
svg-text:Δ': Δ' [1318, 445, 1322, 449]
svg-text:ΔΗΜΟΣ/ΚΟΙΝΟΤΗΤΑ: ΠΑΛΛΗΝΗΣ: ΔΗΜΟΣ/ΚΟΙΝΟΤΗΤΑ: ΠΑΛΛΗΝΗΣ [2088, 543, 2128, 546]
svg-text:ΝΕΟΥ ΚΤΙΡΙΟΥ ΑΠΟΔΥΤΗΡΙΩΝ BASKE: ΝΕΟΥ ΚΤΙΡΙΟΥ ΑΠΟΔΥΤΗΡΙΩΝ BASKET [2058, 349, 2135, 354]
svg-text:Β.Α.: Β.Α. [1980, 85, 1987, 89]
svg-text:+1.25: +1.25 [1372, 397, 1379, 401]
svg-text:Κ18: Κ18 [1431, 437, 1436, 440]
svg-text:ΙΔΙΟΚΤΗΣΙΑ ΣΟΦΙΑΣ ΤΣΙΩΝΗ: ΙΔΙΟΚΤΗΣΙΑ ΣΟΦΙΑΣ ΤΣΙΩΝΗ [1399, 339, 1462, 344]
svg-text:ΟΔΟΣ ΜΕΓΑΛΩΝΟΣ: ΟΔΟΣ ΜΕΓΑΛΩΝΟΣ [575, 203, 579, 236]
svg-text:ΕΚΤΟΣ ΣΧΕΔΙΟΤ- ΤΠΟ ΕΝΤΑΞΗ: ΕΚΤΟΣ ΣΧΕΔΙΟΤ- ΤΠΟ ΕΝΤΑΞΗ [1383, 514, 1512, 521]
svg-text:Γ': Γ' [1355, 448, 1358, 452]
svg-text:02: 02 [602, 405, 606, 408]
svg-text:4.00: 4.00 [1381, 349, 1387, 352]
svg-text:- ΕΙΝΑΙ ΑΡΤΙΑ ΚΑΤΑ ΠΑΡΕΚΚΛΙΣΗ: - ΕΙΝΑΙ ΑΡΤΙΑ ΚΑΤΑ ΠΑΡΕΚΚΛΙΣΗ & ΟΙΚΟΔΟΜΗ… [2297, 274, 2439, 278]
svg-text:ΓΕΩΔΑΙΤΙΚΟΣ ΣΤΑΘΜΟΣ LEICA TCR: ΓΕΩΔΑΙΤΙΚΟΣ ΣΤΑΘΜΟΣ LEICA TCR 805 POWER. [2063, 484, 2139, 487]
svg-text:ΕΚΤΟΣ ΣΧΕΔΙΟΤ: ΕΚΤΟΣ ΣΧΕΔΙΟΤ [1402, 216, 1480, 225]
svg-text:489100: 489100 [1999, 718, 2005, 736]
svg-text:48873: 48873 [2157, 653, 2163, 655]
svg-text:Κ1: Κ1 [1237, 401, 1240, 405]
svg-text:Κ9: Κ9 [1459, 389, 1463, 392]
svg-text:ΚΤΗΜΑΤΟΛΟΓΙΟ ΓΡΑΦΕΙΟ: ΣΠΑΤΩΝ: ΚΤΗΜΑΤΟΛΟΓΙΟ ΓΡΑΦΕΙΟ: ΣΠΑΤΩΝ [2088, 536, 2131, 539]
svg-text:Κ4: Κ4 [2165, 322, 2170, 327]
svg-text:03: 03 [383, 405, 387, 408]
svg-text:ΗΥΠΟΓΕΙΟΥ ΑΠΟ ΔΙΑΜΟΡΦΩΜΕΝΟ ΕΔΑ: ΗΥΠΟΓΕΙΟΥ ΑΠΟ ΔΙΑΜΟΡΦΩΜΕΝΟ ΕΔΑΦΟΣ=0.80 [2070, 97, 2160, 101]
svg-text:ΣΗΜΕΙΩΣΗ: ΣΗΜΕΙΩΣΗ [2059, 467, 2080, 472]
svg-text:488781.18: 488781.18 [2082, 319, 2101, 324]
svg-text:ΧΡΟΝΟΣ ΜΕΛΕΤΗΣ: ΧΡΟΝΟΣ ΜΕΛΕΤΗΣ [2500, 615, 2530, 618]
svg-text:Α': Α' [1324, 343, 1327, 347]
svg-text:ΜΕΛΕΤΗΤΕΣ: ΜΕΛΕΤΗΤΕΣ [2303, 498, 2326, 502]
svg-text:IV: IV [2025, 429, 2030, 435]
svg-text:Ε.Γ.Σ.Α. 87΄: Ε.Γ.Σ.Α. 87΄ [2197, 285, 2219, 290]
svg-text:1: 1 [970, 212, 974, 220]
svg-text:2: 2 [1400, 363, 1402, 367]
svg-text:ΚΑΤ/ΓΟΣ ΥΠΟ ΣΤΟΙΧΕΙΑ: ΚΑΤ/ΓΟΣ ΥΠΟ ΣΤΟΙΧΕΙΑ [2183, 423, 2231, 428]
svg-text:488875.54: 488875.54 [2189, 383, 2208, 388]
svg-text:Ο.Τ. 3021: Ο.Τ. 3021 [600, 305, 614, 309]
svg-text:01: 01 [734, 172, 738, 176]
svg-text:10 ΘΕΣΕΙΣ ΠΟΔΗΛΑΤΩΝ: 10 ΘΕΣΕΙΣ ΠΟΔΗΛΑΤΩΝ [1466, 473, 1497, 479]
svg-text:6.60Μ ΕΠΙ ΤΗΣ ΠΛΕΥΡΑΣ (ΓΔ): 6.60Μ ΕΠΙ ΤΗΣ ΠΛΕΥΡΑΣ (ΓΔ) [2069, 242, 2121, 246]
svg-text:ΜΕΛΛΟΝΤΙΚΗ ΡΥΜ. ΓΡΑΜΜΗ: ΜΕΛΛΟΝΤΙΚΗ ΡΥΜ. ΓΡΑΜΜΗ [1236, 621, 1285, 629]
svg-text:ΦΕΚ 308/03 Ε=4000Μ2 Π=: ΦΕΚ 308/03 Ε=4000Μ2 Π=25Μ [2070, 78, 2123, 82]
svg-text:ΝΟΜΟΣ: ΑΤΤΙΚΗΣ: ΝΟΜΟΣ: ΑΤΤΙΚΗΣ [2088, 540, 2109, 542]
svg-text:Κ10: Κ10 [2162, 452, 2169, 457]
svg-text:Κ17: Κ17 [2055, 450, 2063, 455]
